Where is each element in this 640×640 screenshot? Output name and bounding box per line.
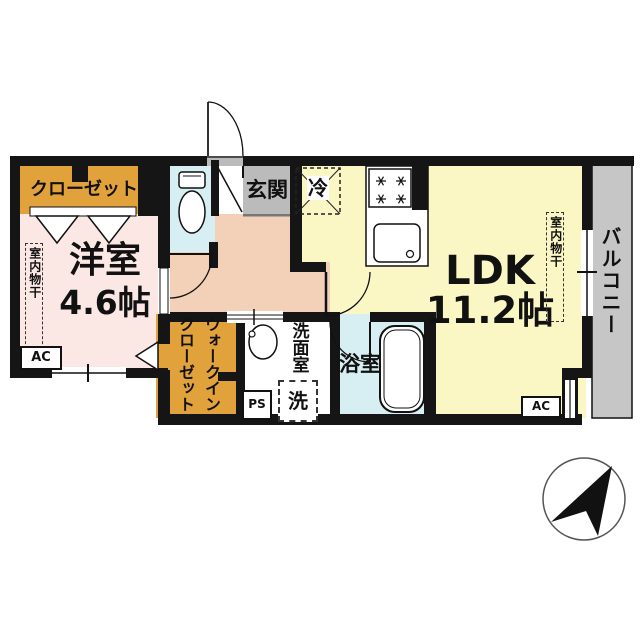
entrance-step-line (243, 214, 290, 217)
balcony-label: バルコニー (598, 226, 621, 340)
closet-label: クローゼット (28, 180, 140, 201)
balcony-lower-window (565, 380, 575, 418)
western-room-ac-label: AC (20, 346, 62, 370)
toilet-icon (179, 172, 205, 233)
bathroom-label: 浴室 (334, 352, 386, 376)
western-room-name: 洋室 (60, 240, 150, 281)
washer-label: 洗 (278, 380, 318, 422)
compass-north-icon (543, 458, 625, 540)
washroom-sliding-door-icon (227, 309, 283, 325)
western-room-sliding-door-icon (158, 268, 170, 314)
pipe-space-label: PS (242, 390, 272, 420)
washbasin-icon (249, 325, 277, 359)
kitchen-stove-icon (369, 169, 411, 207)
western-room-drying-label: 室内物干 (25, 243, 43, 349)
entrance-label: 玄関 (243, 178, 291, 202)
ldk-ac-label: AC (521, 396, 561, 418)
refrigerator-label-text: 冷 (307, 176, 329, 200)
ldk-name: LDK (425, 248, 555, 294)
western-room-size: 4.6帖 (52, 284, 158, 322)
refrigerator-label: 冷 (300, 177, 336, 200)
walk-in-closet-label: ウォークインクローゼット (172, 316, 224, 420)
kitchen-wall-stub (412, 158, 428, 210)
bathtub-icon (380, 326, 424, 412)
ldk-size: 11.2帖 (412, 290, 568, 333)
floorplan-canvas: クローゼット 洋室 4.6帖 室内物干 AC 玄関 冷 LDK 11.2帖 室内… (0, 0, 640, 640)
ldk-drying-label: 室内物干 (546, 212, 564, 322)
washroom-label: 洗面室 (288, 322, 308, 386)
